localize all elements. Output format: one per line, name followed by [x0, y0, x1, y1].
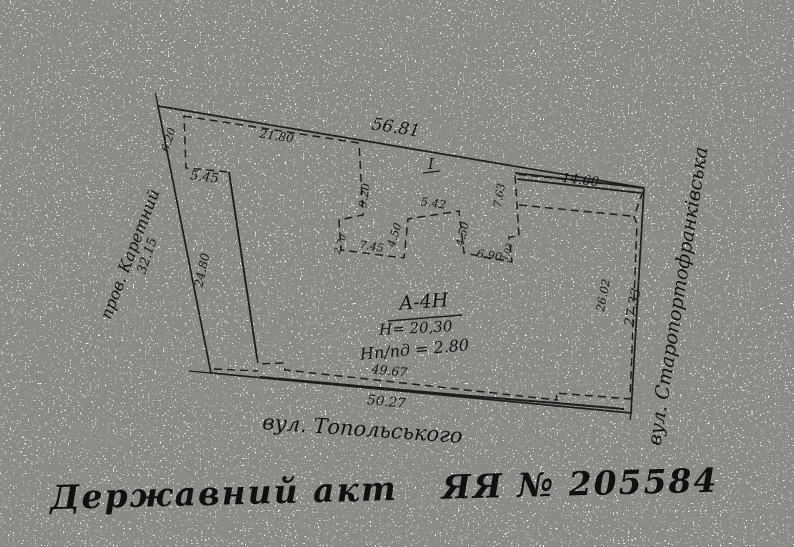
section-mark: I [427, 155, 435, 173]
scanned-plan-page: 56.81 21.80 6.20 5.45 32.15 24.80 9.20 2… [0, 0, 794, 547]
footer-act-number: ЯЯ № 205584 [441, 461, 719, 507]
building-index: А-4Н [396, 289, 449, 315]
